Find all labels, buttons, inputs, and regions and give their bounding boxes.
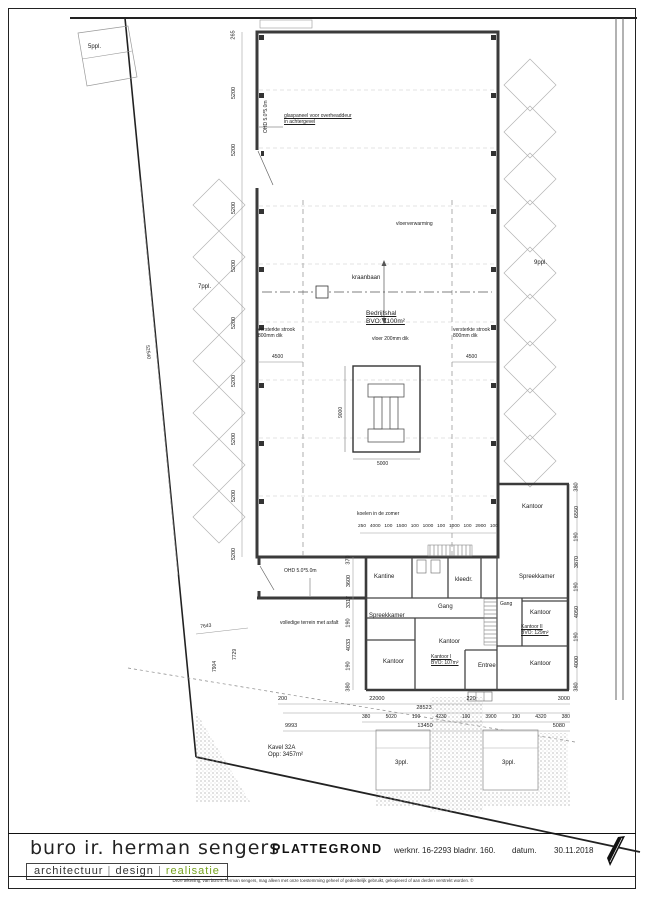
kantoor-ii-info: Kantoor II BVO: 129m² (521, 624, 549, 636)
firm-tagline: architectuur | design | realisatie (26, 863, 228, 880)
kavel-area: Opp: 3457m² (268, 752, 303, 759)
heating-note: vloerverwarming (396, 221, 433, 227)
dim-chain-office-left: 370360033171904033190380 (344, 557, 354, 690)
kantoor-ii-bvo: BVO: 129m² (521, 630, 549, 636)
strip-dim-right: 4500 (466, 354, 477, 360)
work-number: werknr. 16-2293 bladnr. 160. (394, 846, 495, 855)
hall-bvo: BVO: 1100m² (366, 318, 405, 326)
cooling-note: koelen in de zomer (357, 511, 399, 517)
parking-label-5ppl: 5ppl. (88, 44, 101, 51)
office-overhead-door-note: OHD 5.0*5.0m (284, 568, 317, 574)
date-label: datum. (512, 846, 536, 855)
room-label-kantine: Kantine (374, 574, 394, 581)
disclaimer-text: Deze tekening, van buro ir. herman senge… (90, 879, 555, 883)
date-value: 30.11.2018 (554, 846, 593, 855)
kavel-name: Kavel 32A (268, 745, 303, 752)
dim-row-bottom-1: 200220002203000 (278, 696, 570, 702)
glass-note-line2: in achtergevel (284, 119, 352, 125)
strip-note-right: versterkte strook 800mm dik (453, 327, 499, 339)
room-label-spreekkamer-left: Spreekkamer (369, 613, 405, 620)
room-label-entree: Entree (478, 663, 496, 670)
room-label-kantoor-left: Kantoor (383, 659, 404, 666)
kavel-info: Kavel 32A Opp: 3457m² (268, 745, 303, 759)
dim-row-bottom-3: 3805020190423019039001904320380 (362, 714, 570, 720)
dim-chain-left: 265520052005200520052005200520052005200 (229, 32, 239, 557)
room-label-gang-main: Gang (438, 604, 453, 611)
hall-title: Bedrijfshal BVO: 1100m² (366, 310, 405, 326)
dim-row-bottom-2: 28523 (278, 705, 570, 711)
dim-7904: 7904 (212, 661, 218, 672)
drawing-sheet: 5ppl. 7ppl. 9ppl. 3ppl. 3ppl. 52540 7643… (0, 0, 646, 914)
crane-label: kraanbaan (352, 275, 380, 282)
room-label-kantoor-wing-bottom: Kantoor (530, 661, 551, 668)
room-label-kantoor-wing-top: Kantoor (522, 504, 543, 511)
dim-7729: 7729 (232, 649, 238, 660)
machine-width-dim: 5000 (377, 461, 388, 467)
drawing-title: PLATTEGROND (272, 842, 383, 856)
overhead-door-note: OHD 5.0*5.0m (263, 100, 269, 133)
parking-label-3ppl-left: 3ppl. (395, 760, 408, 767)
disclaimer-divider (8, 876, 636, 877)
pen-logo-icon (598, 836, 628, 868)
parking-label-7ppl: 7ppl. (198, 284, 211, 291)
parking-label-9ppl: 9ppl. (534, 260, 547, 267)
room-label-kantoor-wing-mid: Kantoor (530, 610, 551, 617)
asphalt-note: volledige terrein met asfalt (280, 620, 338, 626)
kantoor-i-info: Kantoor I BVO: 107m² (431, 654, 459, 666)
strip-note-left: versterkte strook 800mm dik (258, 327, 304, 339)
dim-chain-right: 3806550190387019040501904000380 (572, 484, 582, 690)
kantoor-i-bvo: BVO: 107m² (431, 660, 459, 666)
boundary-dimension: 52540 (144, 345, 151, 359)
floor-note: vloer 200mm dik (372, 336, 409, 342)
room-label-kantoor-center: Kantoor (439, 639, 460, 646)
firm-name: buro ir. herman sengers (30, 837, 280, 859)
room-label-gang-wing: Gang (500, 601, 512, 607)
machine-depth-dim: 9000 (338, 407, 344, 418)
hall-name: Bedrijfshal (366, 310, 405, 318)
room-label-kleedr: kleedr. (455, 577, 473, 584)
dim-row-office-top: 25040001001500100100010010001002900100 (358, 524, 498, 529)
strip-dim-left: 4500 (272, 354, 283, 360)
glass-panel-note: glaspaneel voor overheaddeur in achterge… (284, 113, 352, 125)
parking-label-3ppl-right: 3ppl. (502, 760, 515, 767)
room-label-spreekkamer-wing: Spreekkamer (519, 574, 555, 581)
dim-row-bottom-4: 9993134505080 (285, 723, 565, 729)
